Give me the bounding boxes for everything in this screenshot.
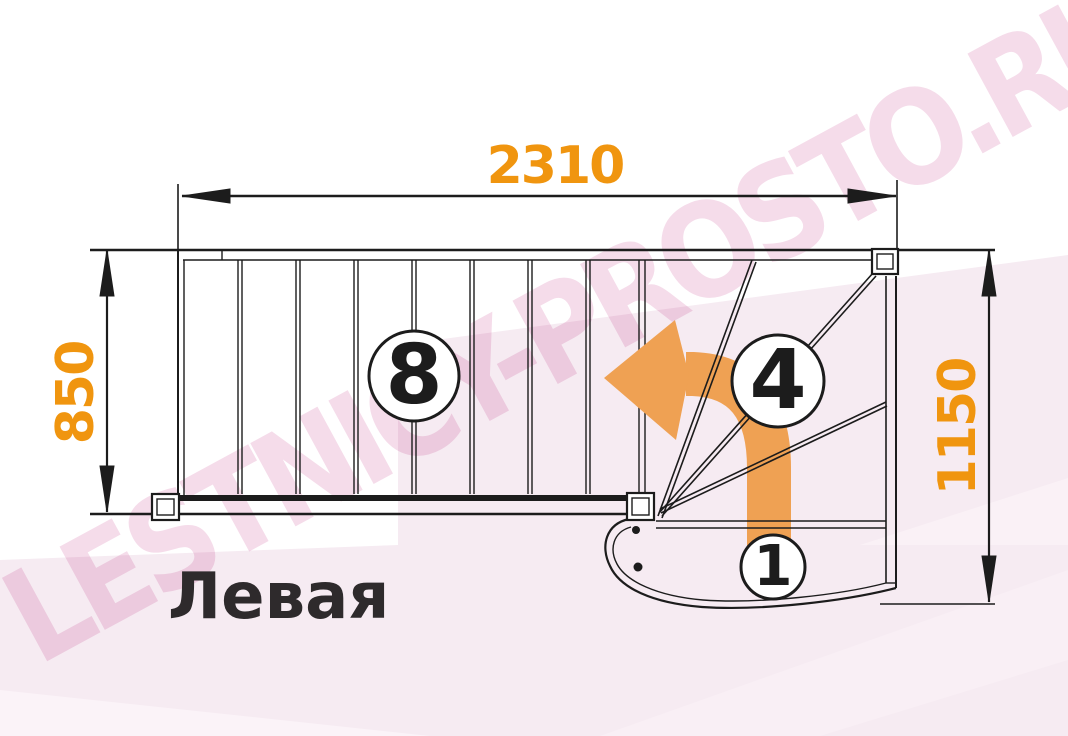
straight-flight bbox=[90, 250, 995, 516]
dimension-label-850: 850 bbox=[50, 333, 102, 453]
stair-plan-drawing: LESTNICY-PROSTO.RU bbox=[0, 0, 1068, 736]
plan-title: Левая bbox=[168, 560, 389, 634]
step-count-winder: 4 bbox=[733, 336, 823, 426]
stair-plan-linework bbox=[0, 0, 1068, 736]
dimension-label-2310: 2310 bbox=[480, 140, 630, 192]
step-count-straight: 8 bbox=[369, 331, 459, 421]
dimension-label-1150: 1150 bbox=[932, 357, 984, 497]
step-count-start: 1 bbox=[741, 535, 805, 599]
dimension-lines bbox=[100, 180, 996, 604]
